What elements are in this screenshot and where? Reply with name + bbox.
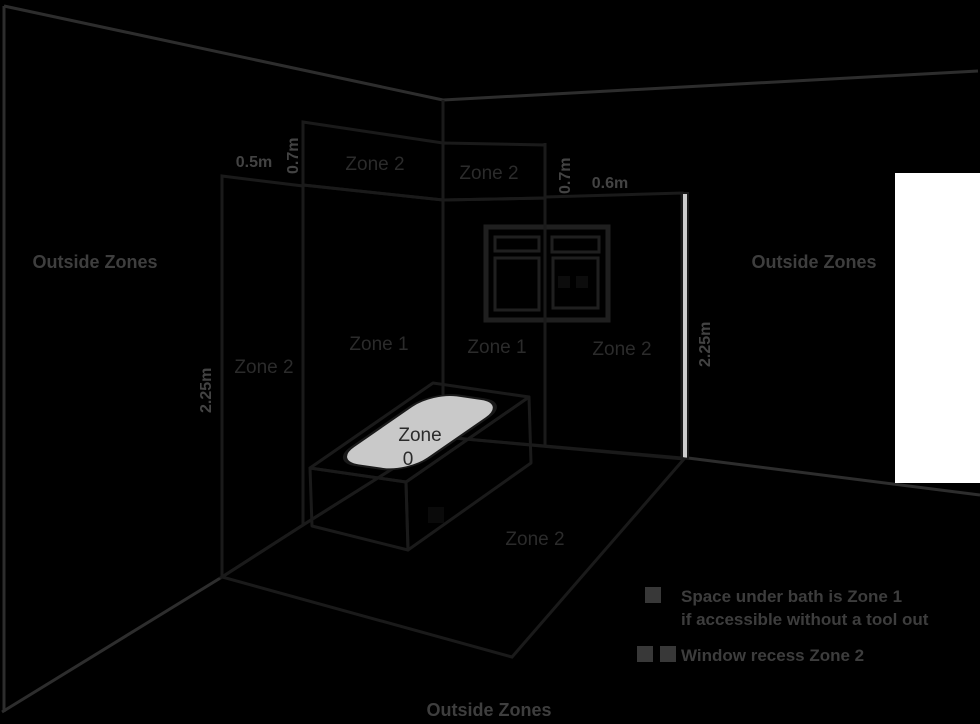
outside-zones-left-label: Outside Zones xyxy=(32,252,157,272)
dim-top-right-height-label: 0.7m xyxy=(557,158,574,194)
legend-window-recess-square-icon-1 xyxy=(637,646,653,662)
legend-under-bath-square-icon xyxy=(645,587,661,603)
bath-zone0-label-line1: Zone xyxy=(398,425,441,446)
right-wall-zone-label: Zone 2 xyxy=(592,339,651,360)
dim-left-wall-height-label: 2.25m xyxy=(198,368,215,413)
right-edge-white-panel xyxy=(895,173,980,483)
dim-right-wall-height-label: 2.25m xyxy=(697,322,714,367)
outside-zones-bottom-label: Outside Zones xyxy=(426,700,551,720)
window-recess-marker-square-2 xyxy=(576,276,588,288)
legend-under-bath-line1: Space under bath is Zone 1 xyxy=(681,587,902,606)
back-left-wall-zone-label: Zone 1 xyxy=(349,334,408,355)
bathroom-zones-diagram: Zone 2 Zone 2 Zone 2 Zone 1 Zone 1 Zone … xyxy=(0,0,980,724)
dim-top-left-height-label: 0.7m xyxy=(285,138,302,174)
floor-zone-label: Zone 2 xyxy=(505,529,564,550)
window-recess-marker-square-1 xyxy=(558,276,570,288)
bath-zone0-label-line2: 0 xyxy=(403,449,414,470)
dim-top-right-width-label: 0.6m xyxy=(592,175,628,192)
dim-top-left-width-label: 0.5m xyxy=(236,154,272,171)
top-band-left-label: Zone 2 xyxy=(345,154,404,175)
legend-window-recess-square-icon-2 xyxy=(660,646,676,662)
right-wall-edge-strip xyxy=(682,193,688,459)
outside-zones-right-label: Outside Zones xyxy=(751,252,876,272)
legend-window-recess-label: Window recess Zone 2 xyxy=(681,646,864,665)
legend-under-bath-line2: if accessible without a tool out xyxy=(681,610,929,629)
back-right-wall-zone-label: Zone 1 xyxy=(467,337,526,358)
left-wall-zone-label: Zone 2 xyxy=(234,357,293,378)
under-bath-marker-square xyxy=(428,507,444,523)
top-band-right-label: Zone 2 xyxy=(459,163,518,184)
